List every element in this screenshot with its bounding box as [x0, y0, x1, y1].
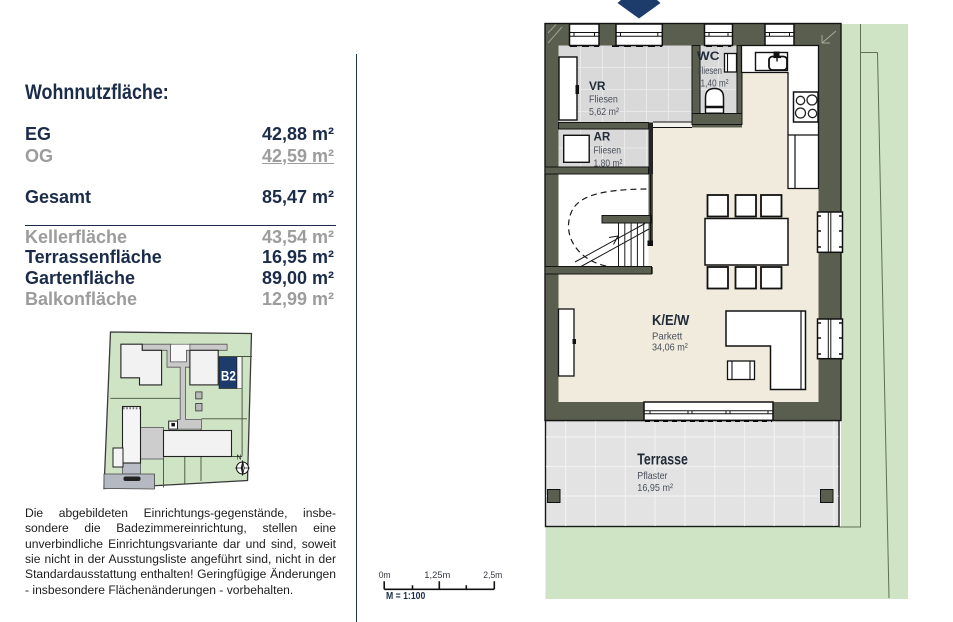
svg-text:Fliesen: Fliesen [697, 65, 722, 77]
svg-text:B2: B2 [221, 368, 236, 383]
svg-text:Fliesen: Fliesen [589, 93, 618, 105]
svg-text:16,95 m²: 16,95 m² [637, 482, 673, 494]
svg-text:AR: AR [594, 130, 611, 144]
svg-text:34,06 m²: 34,06 m² [652, 341, 688, 353]
svg-text:N: N [237, 455, 242, 462]
svg-text:2,5m: 2,5m [483, 570, 502, 581]
svg-text:Fliesen: Fliesen [594, 145, 622, 157]
svg-text:VR: VR [589, 79, 606, 93]
svg-text:WC: WC [697, 49, 720, 63]
svg-text:Terrasse: Terrasse [637, 452, 688, 469]
svg-text:5,62 m²: 5,62 m² [589, 106, 619, 118]
svg-text:1,40 m²: 1,40 m² [701, 77, 729, 89]
svg-text:1,25m: 1,25m [424, 570, 450, 581]
svg-text:1,80 m²: 1,80 m² [594, 158, 623, 170]
svg-text:Pflaster: Pflaster [637, 470, 668, 482]
svg-text:K/E/W: K/E/W [652, 312, 690, 329]
svg-text:M = 1:100: M = 1:100 [386, 591, 426, 602]
svg-text:0m: 0m [379, 570, 391, 581]
